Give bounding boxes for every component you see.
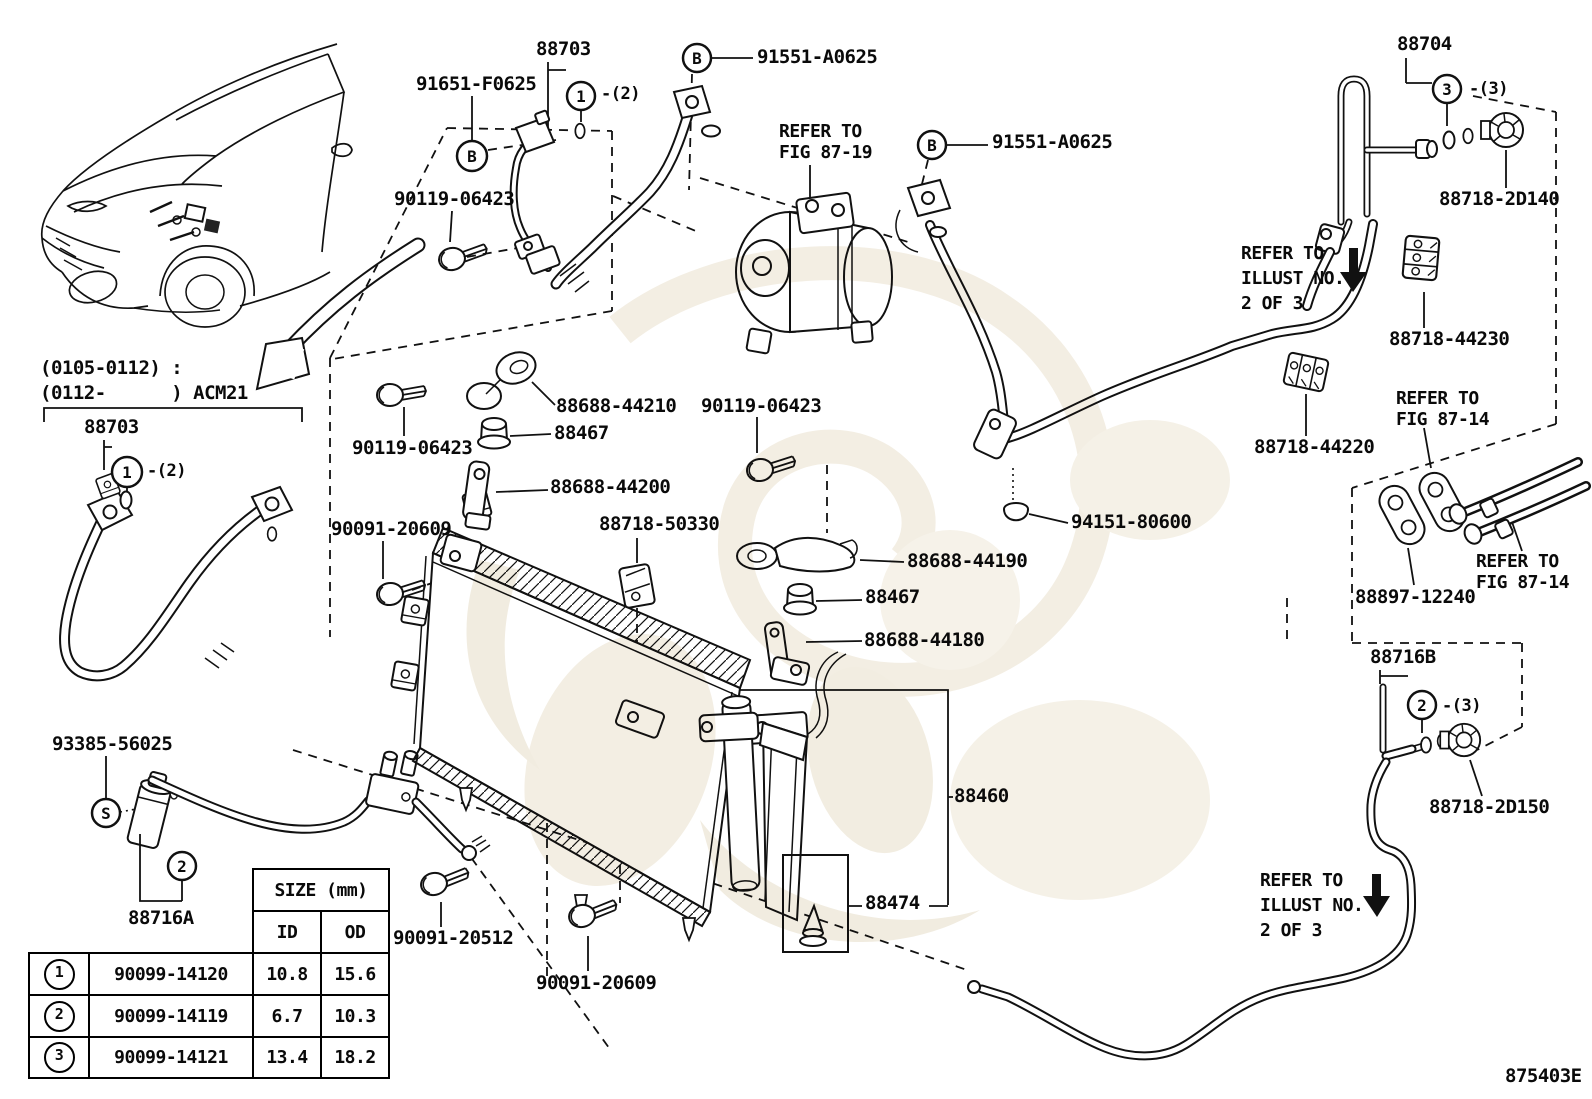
table-row-callout: 3 [28, 1036, 90, 1079]
table-row-id-value: 13.4 [252, 1036, 322, 1079]
table-row-od-value: 15.6 [320, 952, 390, 996]
refer-line: REFER TO [1260, 870, 1343, 891]
part-label-88474: 88474 [865, 893, 920, 914]
grommet-94151 [1004, 503, 1028, 520]
nut-88718-2d140 [1481, 113, 1523, 147]
table-row-id-value: 6.7 [252, 994, 322, 1038]
grommet-88467 [784, 584, 816, 615]
callout-b: B [692, 49, 702, 68]
variant-note-line2: (0112- ) ACM21 [40, 383, 248, 404]
part-label-88718-44220: 88718-44220 [1254, 437, 1374, 458]
refer-line: REFER TO [1476, 551, 1559, 572]
bolt-90091-20609 [567, 898, 620, 930]
table-row-part-number: 90099-14121 [88, 1036, 254, 1079]
circled-number: 2 [44, 1001, 75, 1032]
table-row-part-number: 90099-14119 [88, 994, 254, 1038]
bolt-90119-06423 [437, 242, 489, 272]
refer-line: ILLUST NO. [1241, 268, 1344, 289]
part-label-91551-a0625-2: 91551-A0625 [992, 132, 1112, 153]
size-table-header: SIZE (mm) [252, 868, 390, 912]
refer-line: REFER TO [1241, 243, 1324, 264]
bolt-90119-06423 [377, 384, 426, 406]
part-label-88703-top: 88703 [536, 39, 591, 60]
table-row-callout: 2 [28, 994, 90, 1038]
car-sketch [42, 44, 352, 327]
part-label-88897-12240: 88897-12240 [1355, 587, 1475, 608]
callout-1: 1 [576, 87, 586, 106]
callout-b: B [927, 136, 937, 155]
callout-3: 3 [1442, 80, 1452, 99]
callout-b: B [467, 147, 477, 166]
part-label-90091-20609-bottom: 90091-20609 [536, 973, 656, 994]
table-row-part-number: 90099-14120 [88, 952, 254, 996]
id-column-header: ID [252, 910, 322, 954]
refer-note-fig-87-19: REFER TOFIG 87-19 [779, 121, 872, 163]
part-label-88467-lower: 88467 [865, 587, 920, 608]
refer-line: 2 OF 3 [1241, 293, 1303, 314]
part-label-91651-f0625: 91651-F0625 [416, 74, 536, 95]
bolt-90091-20512 [419, 866, 472, 898]
part-label-90091-20512: 90091-20512 [393, 928, 513, 949]
figure-code: 875403E [1505, 1066, 1582, 1087]
part-label-88688-44200: 88688-44200 [550, 477, 670, 498]
size-table: SIZE (mm) ID OD 1 90099-14120 10.8 15.6 … [28, 868, 390, 1079]
part-label-93385-56025: 93385-56025 [52, 734, 172, 755]
down-arrow-icon [1363, 874, 1390, 917]
parts-diagram-canvas: 1 S 2 B 1 B B 3 2 (0105-0112) : (0112- )… [0, 0, 1592, 1099]
part-label-94151-80600: 94151-80600 [1071, 512, 1191, 533]
clamp-88718-44230 [1402, 236, 1439, 281]
refer-line: REFER TO [1396, 388, 1479, 409]
part-label-88716b: 88716B [1370, 647, 1436, 668]
refer-line: FIG 87-19 [779, 142, 872, 163]
part-label-88718-2d140: 88718-2D140 [1439, 189, 1559, 210]
engine-bay-ac-parts [150, 202, 220, 240]
table-row-od-value: 10.3 [320, 994, 390, 1038]
refer-line: 2 OF 3 [1260, 920, 1322, 941]
grommet-88467 [478, 418, 510, 449]
part-label-88688-44180: 88688-44180 [864, 630, 984, 651]
part-label-90119-06423-right: 90119-06423 [701, 396, 821, 417]
part-label-88704: 88704 [1397, 34, 1452, 55]
part-label-91551-a0625-1: 91551-A0625 [757, 47, 877, 68]
qty-suffix: -(3) [1442, 696, 1481, 717]
refer-line: ILLUST NO. [1260, 895, 1363, 916]
refer-note-fig-87-14-lower: REFER TOFIG 87-14 [1476, 551, 1569, 593]
part-label-88718-44230: 88718-44230 [1389, 329, 1509, 350]
od-column-header: OD [320, 910, 390, 954]
circled-number: 3 [44, 1042, 75, 1073]
callout-s: S [101, 804, 111, 823]
refer-note-fig-87-14-upper: REFER TOFIG 87-14 [1396, 388, 1489, 430]
variant-bracket [44, 408, 302, 422]
part-label-88688-44210: 88688-44210 [556, 396, 676, 417]
refer-line: REFER TO [779, 121, 862, 142]
circled-number: 1 [44, 959, 75, 990]
refer-note-illust-top: REFER TOILLUST NO.2 OF 3 [1241, 241, 1344, 316]
refer-line: FIG 87-14 [1396, 409, 1489, 430]
part-label-88688-44190: 88688-44190 [907, 551, 1027, 572]
table-row-od-value: 18.2 [320, 1036, 390, 1079]
qty-suffix: -(3) [1469, 79, 1508, 100]
qty-suffix: -(2) [601, 84, 640, 105]
pointer-arrow [257, 245, 418, 389]
refer-note-illust-bottom: REFER TOILLUST NO.2 OF 3 [1260, 868, 1363, 943]
part-label-90091-20609-left: 90091-20609 [331, 519, 451, 540]
part-label-88718-2d150: 88718-2D150 [1429, 797, 1549, 818]
callout-1: 1 [122, 463, 132, 482]
variant-note-line1: (0105-0112) : [40, 358, 182, 379]
part-label-88718-50330: 88718-50330 [599, 514, 719, 535]
table-row-callout: 1 [28, 952, 90, 996]
table-row-id-value: 10.8 [252, 952, 322, 996]
part-label-90119-06423-top: 90119-06423 [394, 189, 514, 210]
refer-line: FIG 87-14 [1476, 572, 1569, 593]
part-label-88460: 88460 [954, 786, 1009, 807]
qty-suffix: -(2) [147, 461, 186, 482]
part-label-88703-left: 88703 [84, 417, 139, 438]
nut-88718-2d150 [1440, 724, 1480, 756]
callout-2: 2 [1417, 696, 1427, 715]
part-label-90119-06423-mid: 90119-06423 [352, 438, 472, 459]
part-label-88467-upper: 88467 [554, 423, 609, 444]
clamp-88718-44220 [1283, 352, 1329, 392]
